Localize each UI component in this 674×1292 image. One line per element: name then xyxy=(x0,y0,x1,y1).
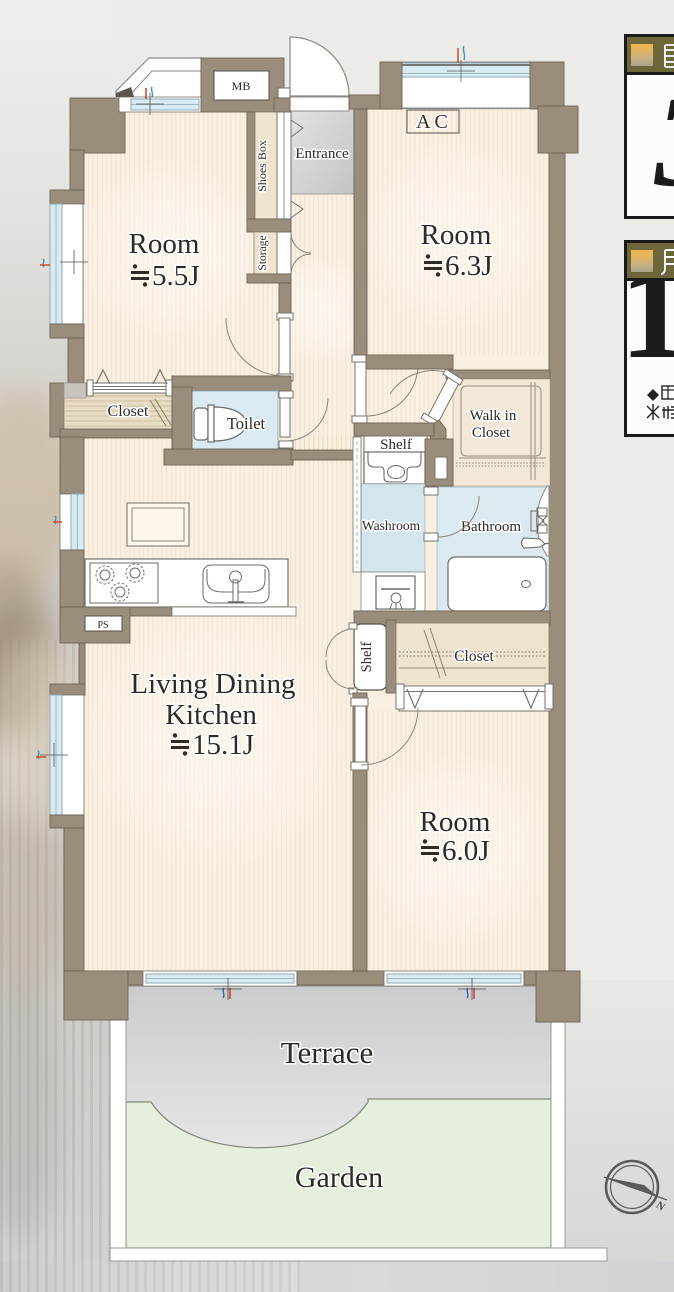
svg-text:Shelf: Shelf xyxy=(380,437,412,453)
svg-text:Shelf: Shelf xyxy=(359,642,375,673)
svg-text:Room: Room xyxy=(420,806,491,838)
svg-text:6.3J: 6.3J xyxy=(445,250,493,282)
svg-text:6.0J: 6.0J xyxy=(442,835,490,867)
svg-text:N: N xyxy=(654,1199,667,1213)
svg-text:Kitchen: Kitchen xyxy=(165,699,257,731)
svg-text:Entrance: Entrance xyxy=(295,146,349,162)
svg-text:Terrace: Terrace xyxy=(281,1035,373,1070)
svg-text:MB: MB xyxy=(232,79,251,93)
svg-text:Closet: Closet xyxy=(108,403,149,420)
svg-text:Room: Room xyxy=(421,219,492,251)
svg-text:PS: PS xyxy=(97,620,108,631)
svg-text:Washroom: Washroom xyxy=(362,518,421,533)
svg-text:Storage: Storage xyxy=(257,235,269,270)
svg-text:Toilet: Toilet xyxy=(227,414,266,433)
svg-text:Garden: Garden xyxy=(295,1161,383,1194)
svg-text:Walk in: Walk in xyxy=(470,408,517,424)
svg-text:Living Dining: Living Dining xyxy=(130,668,295,700)
svg-text:A C: A C xyxy=(416,111,448,133)
svg-text:Closet: Closet xyxy=(454,648,494,665)
svg-text:5.5J: 5.5J xyxy=(152,260,200,292)
svg-text:15.1J: 15.1J xyxy=(192,729,254,761)
svg-text:Closet: Closet xyxy=(472,425,511,441)
svg-text:Room: Room xyxy=(129,228,200,260)
svg-text:Shoes Box: Shoes Box xyxy=(255,140,269,192)
